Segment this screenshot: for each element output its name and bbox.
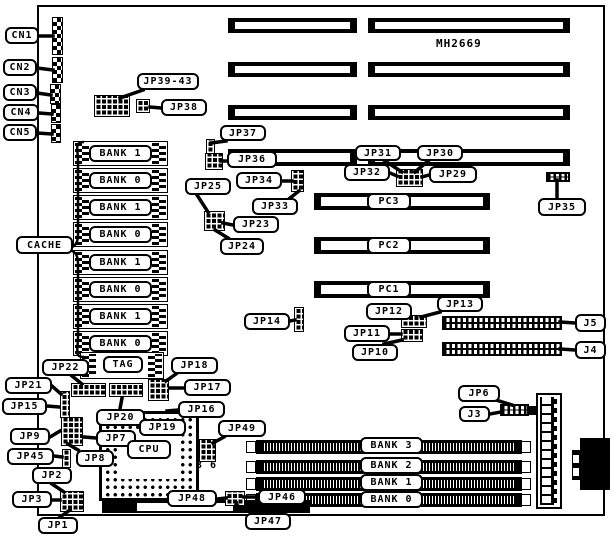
simm-clip-left-3	[246, 441, 256, 453]
callout-jp39-43: JP39-43	[137, 73, 199, 90]
jumper-block-jp17-18	[148, 379, 169, 401]
j3-end-pin	[529, 406, 536, 415]
jumper-block-jp45	[62, 449, 71, 468]
simm-clip-right-0	[521, 494, 531, 506]
callout-jp11: JP11	[344, 325, 390, 342]
callout-jp29: JP29	[429, 166, 477, 183]
labelbox-cache-chip8: BANK 0	[89, 335, 152, 352]
power-connector	[536, 393, 562, 509]
callout-jp2: JP2	[32, 467, 72, 484]
jumper-block-jp20	[109, 383, 143, 397]
simm-clip-left-1	[246, 478, 256, 490]
simm-clip-right-1	[521, 478, 531, 490]
callout-jp49: JP49	[218, 420, 266, 437]
callout-jp38: JP38	[161, 99, 207, 116]
labelbox-simm-bank3: BANK 3	[360, 437, 423, 454]
callout-jp16: JP16	[178, 401, 225, 418]
callout-jp10: JP10	[352, 344, 398, 361]
labelbox-cache-chip1: BANK 1	[89, 145, 152, 162]
callout-jp22: JP22	[42, 359, 89, 376]
callout-cn1: CN1	[5, 27, 39, 44]
labelbox-simm-bank2: BANK 2	[360, 457, 423, 474]
keyboard-connector	[580, 438, 610, 490]
callout-jp13: JP13	[437, 296, 483, 312]
labelbox-cache-chip2: BANK 0	[89, 172, 152, 189]
isa-slot-row2-right	[368, 62, 570, 77]
jumper-block-jp39-43	[94, 95, 130, 117]
keyboard-connector-notch2	[573, 468, 579, 476]
callout-jp24: JP24	[220, 238, 264, 255]
connector-cn1	[52, 17, 63, 55]
callout-cn5: CN5	[3, 124, 37, 141]
callout-jp35: JP35	[538, 198, 586, 216]
isa-slot-row3-left	[228, 105, 357, 120]
callout-jp20: JP20	[96, 409, 145, 426]
callout-jp45: JP45	[7, 448, 54, 465]
labelbox-simm-bank1: BANK 1	[360, 474, 423, 491]
pin-header-j4	[442, 342, 562, 356]
connector-cn4	[51, 104, 61, 123]
callout-jp21: JP21	[5, 377, 52, 394]
callout-jp34: JP34	[236, 172, 282, 189]
text-board-chip-label: MH2669	[436, 37, 482, 50]
labelbox-cache-chip3: BANK 1	[89, 199, 152, 216]
callout-jp19: JP19	[139, 419, 186, 436]
connector-cn3	[50, 84, 61, 104]
callout-jp12: JP12	[366, 303, 412, 320]
isa-slot-row1-left	[228, 18, 357, 33]
jumper-block-jp10-11	[401, 329, 423, 342]
simm-clip-left-2	[246, 461, 256, 473]
callout-jp3: JP3	[12, 491, 52, 508]
labelbox-cache-chip6: BANK 0	[89, 281, 152, 298]
jumper-block-jp14	[294, 307, 304, 332]
callout-jp48: JP48	[167, 490, 217, 507]
isa-slot-row2-left	[228, 62, 357, 77]
callout-jp31: JP31	[355, 145, 401, 161]
jumper-strip-jp35	[546, 172, 570, 182]
labelbox-cpu: CPU	[127, 440, 171, 459]
jumper-block-jp33-34	[291, 170, 304, 192]
labelbox-cache-chip5: BANK 1	[89, 254, 152, 271]
callout-jp37: JP37	[220, 125, 266, 141]
labelbox-cache-chip7: BANK 1	[89, 308, 152, 325]
labelbox-tag: TAG	[103, 356, 143, 373]
callout-jp14: JP14	[244, 313, 290, 330]
labelbox-pc2: PC2	[367, 237, 411, 254]
callout-jp6: JP6	[458, 385, 500, 402]
jumper-block-jp49	[199, 439, 216, 462]
pin-header-j3-jp6	[500, 404, 529, 416]
isa-slot-row3-right	[368, 105, 570, 120]
callout-cache: CACHE	[16, 236, 73, 254]
pin-header-j5	[442, 316, 562, 330]
motherboard-diagram: CN1CN2CN3CN4CN5JP39-43JP38JP37JP36JP31JP…	[0, 0, 615, 540]
callout-jp23: JP23	[233, 216, 279, 233]
connector-cn5	[51, 124, 61, 143]
jumper-block-jp1-2-3	[60, 491, 84, 512]
callout-jp17: JP17	[184, 379, 231, 396]
text-jp49-pin-numbers: 3 6	[196, 460, 217, 471]
jumper-block-jp23-25	[204, 211, 225, 231]
labelbox-pc3: PC3	[367, 193, 411, 210]
callout-jp9: JP9	[10, 428, 50, 445]
jumper-block-jp36	[205, 153, 223, 170]
jumper-block-jp22	[71, 383, 106, 397]
jumper-block-jp38	[136, 99, 150, 113]
callout-cn4: CN4	[3, 104, 39, 121]
callout-jp30: JP30	[417, 145, 463, 161]
text-logo-mark: A	[234, 500, 240, 510]
callout-jp46: JP46	[258, 489, 306, 505]
callout-jp8: JP8	[76, 450, 114, 467]
simm-clip-right-2	[521, 461, 531, 473]
callout-j4: J4	[575, 341, 606, 359]
callout-jp18: JP18	[171, 357, 218, 374]
jumper-block-jp7-9	[61, 417, 83, 446]
callout-jp15: JP15	[2, 398, 47, 415]
connector-cn2	[52, 57, 63, 83]
simm-clip-right-3	[521, 441, 531, 453]
callout-jp32: JP32	[344, 164, 390, 181]
jumper-block-jp15-21	[60, 391, 70, 418]
callout-jp25: JP25	[185, 178, 231, 195]
callout-jp36: JP36	[227, 151, 277, 168]
callout-jp33: JP33	[252, 198, 298, 215]
callout-cn2: CN2	[3, 59, 37, 76]
labelbox-pc1: PC1	[367, 281, 411, 298]
keyboard-connector-notch1	[573, 455, 579, 463]
labelbox-cache-chip4: BANK 0	[89, 226, 152, 243]
jumper-block-jp37	[206, 139, 215, 154]
isa-slot-row1-right	[368, 18, 570, 33]
callout-jp47: JP47	[245, 513, 291, 530]
labelbox-simm-bank0: BANK 0	[360, 491, 423, 508]
callout-cn3: CN3	[3, 84, 37, 101]
callout-j5: J5	[575, 314, 606, 332]
jumper-block-jp29-32	[396, 169, 423, 187]
callout-jp1: JP1	[38, 517, 78, 534]
callout-j3: J3	[459, 406, 490, 422]
